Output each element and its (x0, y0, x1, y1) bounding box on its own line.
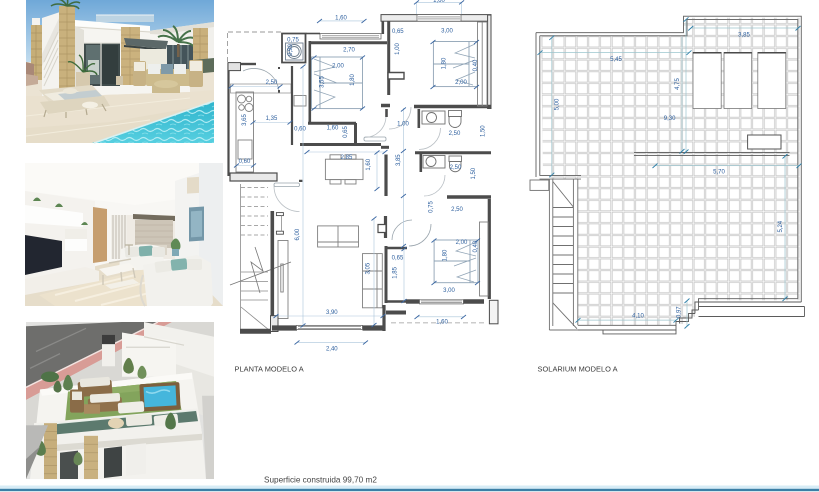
svg-text:3,90: 3,90 (326, 310, 338, 316)
svg-text:5,45: 5,45 (610, 57, 622, 63)
svg-text:1,60: 1,60 (366, 158, 372, 170)
svg-text:3,85: 3,85 (738, 33, 750, 39)
svg-text:5,00: 5,00 (555, 98, 561, 110)
svg-text:3,55: 3,55 (320, 76, 326, 88)
svg-text:1,80: 1,80 (350, 74, 356, 86)
svg-text:2,50: 2,50 (266, 80, 278, 86)
svg-text:0,65: 0,65 (392, 29, 404, 35)
svg-text:0,90: 0,90 (288, 44, 294, 56)
svg-text:PLANTA MODELO A: PLANTA MODELO A (235, 365, 304, 374)
svg-text:0,97: 0,97 (676, 306, 682, 318)
svg-text:2,00: 2,00 (456, 240, 468, 246)
svg-text:1,80: 1,80 (442, 57, 448, 69)
svg-text:0,40: 0,40 (473, 240, 479, 252)
svg-text:2,70: 2,70 (343, 48, 355, 54)
svg-text:1,50: 1,50 (471, 167, 477, 179)
svg-text:3,00: 3,00 (443, 288, 455, 294)
svg-text:3,00: 3,00 (441, 29, 453, 35)
svg-text:3,05: 3,05 (365, 262, 371, 274)
svg-text:0,60: 0,60 (294, 127, 306, 133)
svg-text:9,30: 9,30 (664, 116, 676, 122)
svg-text:2,00: 2,00 (332, 64, 344, 70)
svg-text:0,75: 0,75 (287, 38, 299, 44)
svg-text:SOLARIUM MODELO A: SOLARIUM MODELO A (538, 365, 618, 374)
svg-text:Superficie construida 99,70 m2: Superficie construida 99,70 m2 (264, 476, 377, 485)
svg-text:0,40: 0,40 (473, 59, 479, 71)
svg-text:1,60: 1,60 (327, 126, 339, 132)
svg-text:1,80: 1,80 (443, 249, 449, 261)
svg-text:1,00: 1,00 (395, 43, 401, 55)
svg-text:1,35: 1,35 (266, 116, 278, 122)
svg-text:4,75: 4,75 (675, 78, 681, 90)
svg-text:5,24: 5,24 (778, 220, 784, 232)
svg-text:6,00: 6,00 (295, 228, 301, 240)
svg-text:2,50: 2,50 (449, 131, 461, 137)
svg-text:2,85: 2,85 (341, 155, 353, 161)
svg-text:5,70: 5,70 (713, 170, 725, 176)
svg-text:2,50: 2,50 (450, 165, 462, 171)
svg-text:3,65: 3,65 (242, 114, 248, 126)
svg-text:1,60: 1,60 (436, 320, 448, 326)
svg-text:1,60: 1,60 (433, 0, 445, 4)
svg-text:3,85: 3,85 (396, 154, 402, 166)
svg-text:2,40: 2,40 (326, 347, 338, 353)
svg-text:2,00: 2,00 (455, 80, 467, 86)
svg-text:2,50: 2,50 (451, 207, 463, 213)
svg-text:1,85: 1,85 (393, 266, 399, 278)
svg-text:0,60: 0,60 (239, 159, 251, 165)
svg-text:1,00: 1,00 (397, 122, 409, 128)
svg-text:0,65: 0,65 (392, 256, 404, 262)
svg-text:0,75: 0,75 (429, 201, 435, 213)
svg-text:1,50: 1,50 (480, 125, 486, 137)
svg-text:1,60: 1,60 (335, 16, 347, 22)
svg-text:4,10: 4,10 (632, 314, 644, 320)
svg-text:0,65: 0,65 (343, 126, 349, 138)
